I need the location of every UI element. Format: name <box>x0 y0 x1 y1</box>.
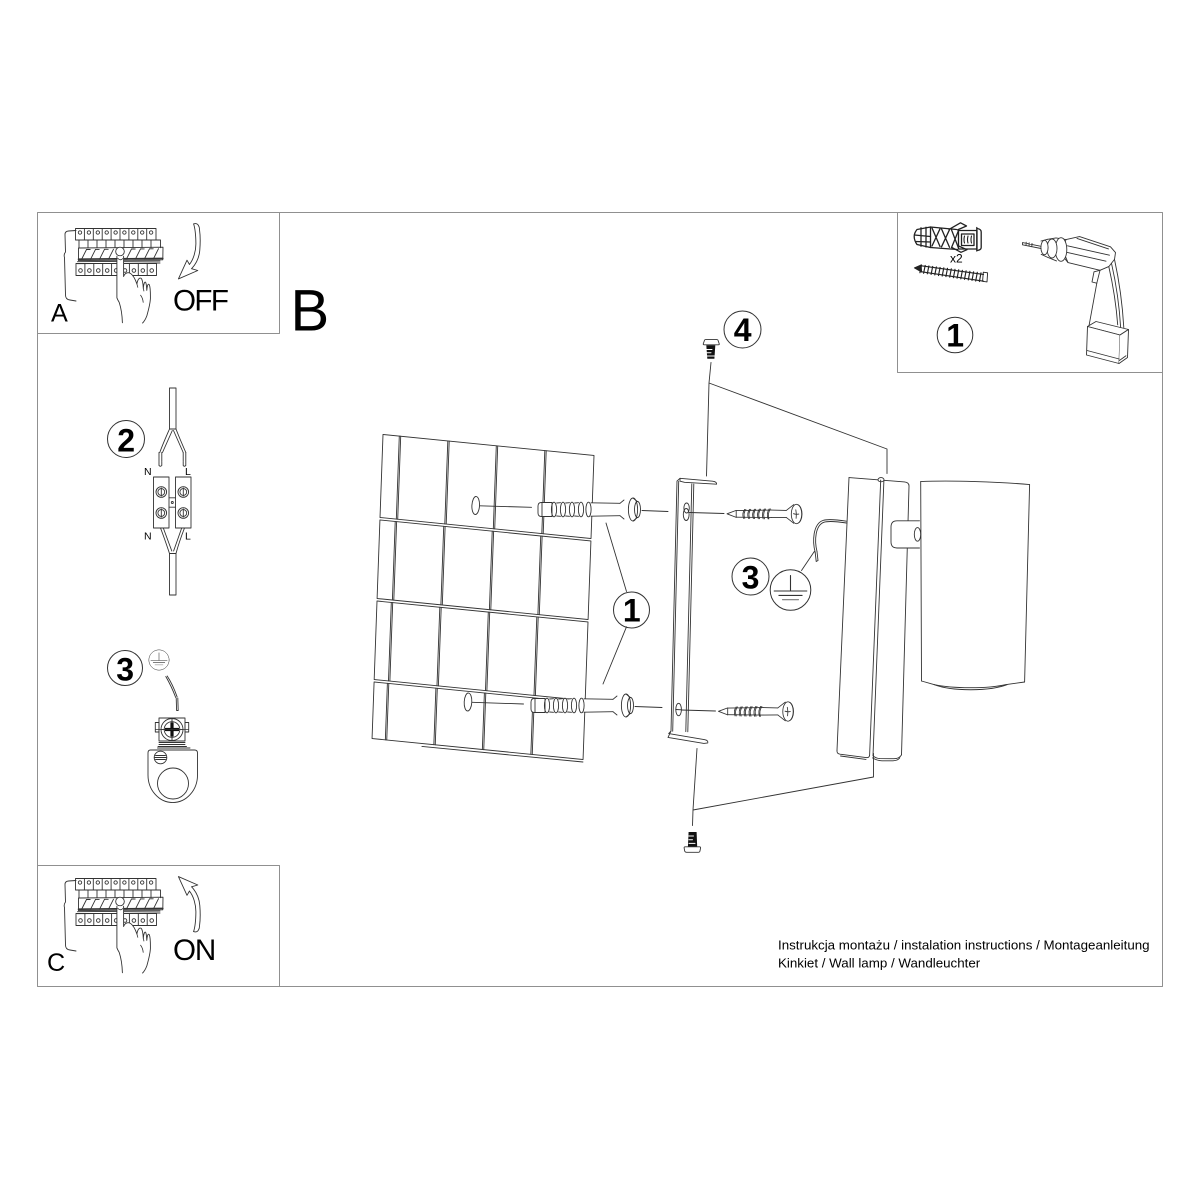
svg-text:ON: ON <box>173 934 215 967</box>
svg-text:Instrukcja montażu / instalati: Instrukcja montażu / instalation instruc… <box>778 938 1150 953</box>
svg-text:Kinkiet / Wall lamp / Wandleuc: Kinkiet / Wall lamp / Wandleuchter <box>778 956 981 971</box>
svg-text:x2: x2 <box>950 252 963 266</box>
svg-text:A: A <box>51 300 68 328</box>
svg-text:1: 1 <box>946 318 964 354</box>
svg-text:2: 2 <box>117 423 135 459</box>
svg-text:L: L <box>185 531 191 543</box>
svg-text:B: B <box>291 279 330 344</box>
svg-text:L: L <box>185 466 191 478</box>
svg-text:4: 4 <box>734 312 752 348</box>
svg-text:1: 1 <box>623 593 641 629</box>
svg-text:N: N <box>144 531 152 543</box>
svg-text:C: C <box>47 949 65 977</box>
svg-text:OFF: OFF <box>173 285 228 318</box>
svg-text:3: 3 <box>116 652 134 688</box>
svg-text:N: N <box>144 466 152 478</box>
svg-text:3: 3 <box>742 560 760 596</box>
